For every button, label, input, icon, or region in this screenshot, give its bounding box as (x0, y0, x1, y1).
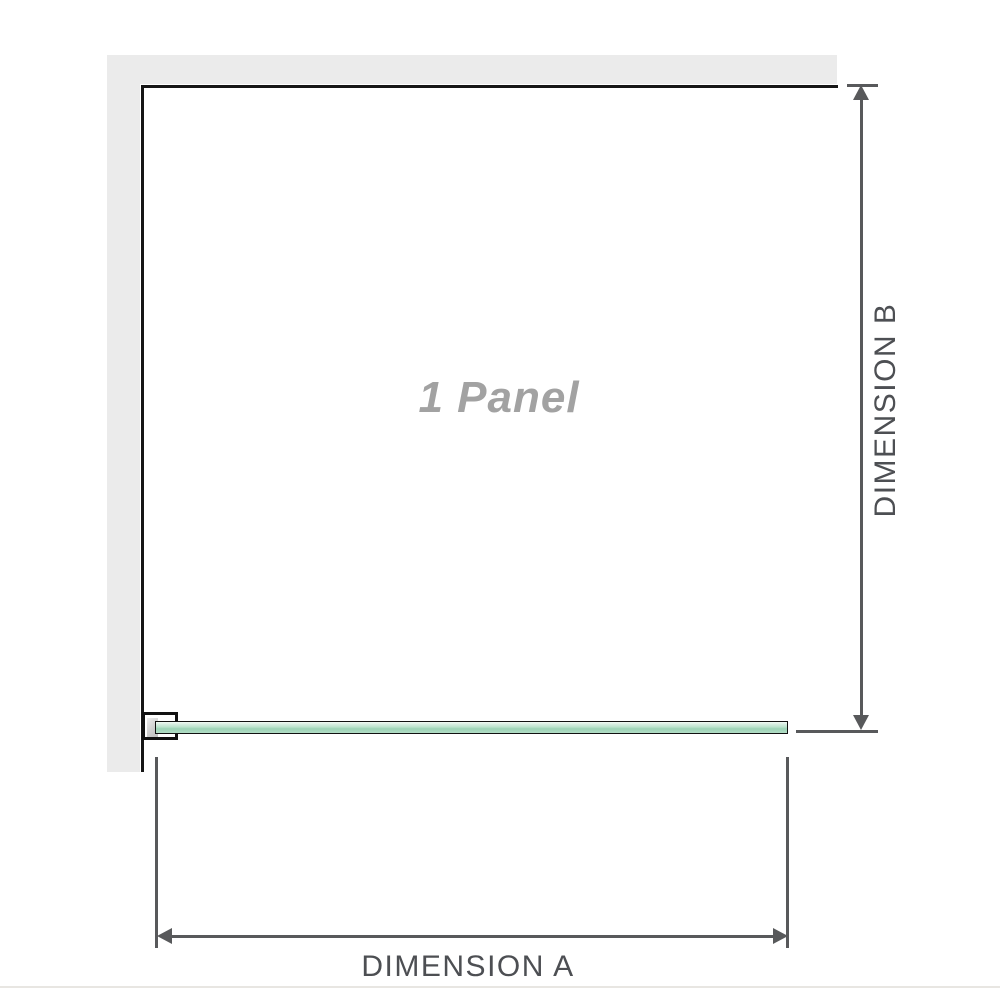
panel-edge-left (141, 85, 144, 772)
dim-b-line (860, 97, 863, 718)
panel-dimension-diagram: 1 Panel DIMENSION B DIMENSION A (0, 0, 1000, 1000)
dim-a-extension-left (155, 757, 158, 948)
dim-b-arrow-up-icon (853, 85, 869, 100)
dim-b-arrow-down-icon (853, 715, 869, 730)
dim-a-arrow-right-icon (773, 928, 788, 944)
panel-label: 1 Panel (299, 368, 699, 428)
dim-b-tick-bottom (796, 730, 878, 733)
bottom-divider (0, 986, 1000, 988)
dim-b-label: DIMENSION B (869, 280, 903, 540)
dim-a-label: DIMENSION A (318, 950, 618, 984)
wall-surface-top (107, 55, 837, 84)
dim-a-extension-right (786, 757, 789, 948)
wall-surface-left (107, 55, 140, 772)
dim-a-line (170, 935, 774, 938)
panel-edge-top (141, 85, 838, 88)
dim-a-arrow-left-icon (157, 928, 172, 944)
glass-panel (155, 721, 788, 734)
